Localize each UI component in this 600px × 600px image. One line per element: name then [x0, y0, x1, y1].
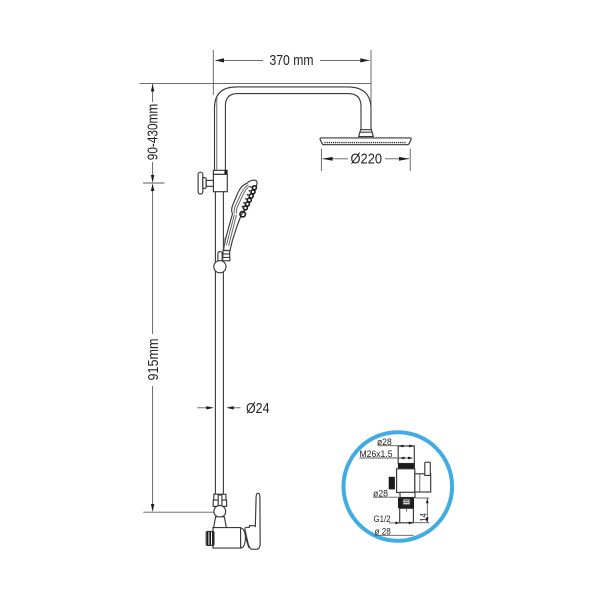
- svg-text:915mm: 915mm: [145, 339, 162, 381]
- svg-text:90-430mm: 90-430mm: [144, 104, 161, 161]
- svg-text:14: 14: [418, 513, 428, 522]
- svg-text:Ø24: Ø24: [246, 400, 270, 417]
- svg-text:370 mm: 370 mm: [270, 52, 314, 69]
- svg-text:Ø220: Ø220: [351, 151, 383, 168]
- svg-text:G1/2: G1/2: [374, 514, 391, 524]
